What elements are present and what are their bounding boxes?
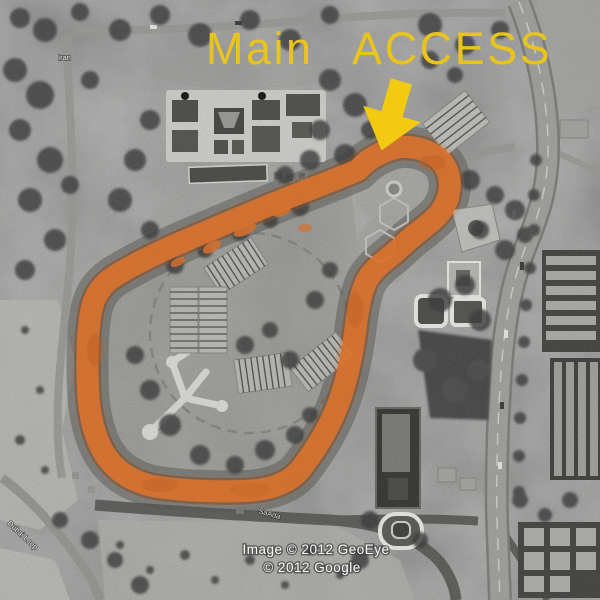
google-earth-viewport: Iran Dubai Loop SaAda Main ACCESS Image … — [0, 0, 600, 600]
street-label-iran: Iran — [58, 53, 71, 62]
main-access-title: Main ACCESS — [206, 23, 552, 74]
attribution-line2: © 2012 Google — [263, 560, 361, 575]
satellite-map[interactable]: Iran Dubai Loop SaAda Main ACCESS Image … — [0, 0, 600, 600]
attribution-line1: Image © 2012 GeoEye — [242, 542, 389, 557]
